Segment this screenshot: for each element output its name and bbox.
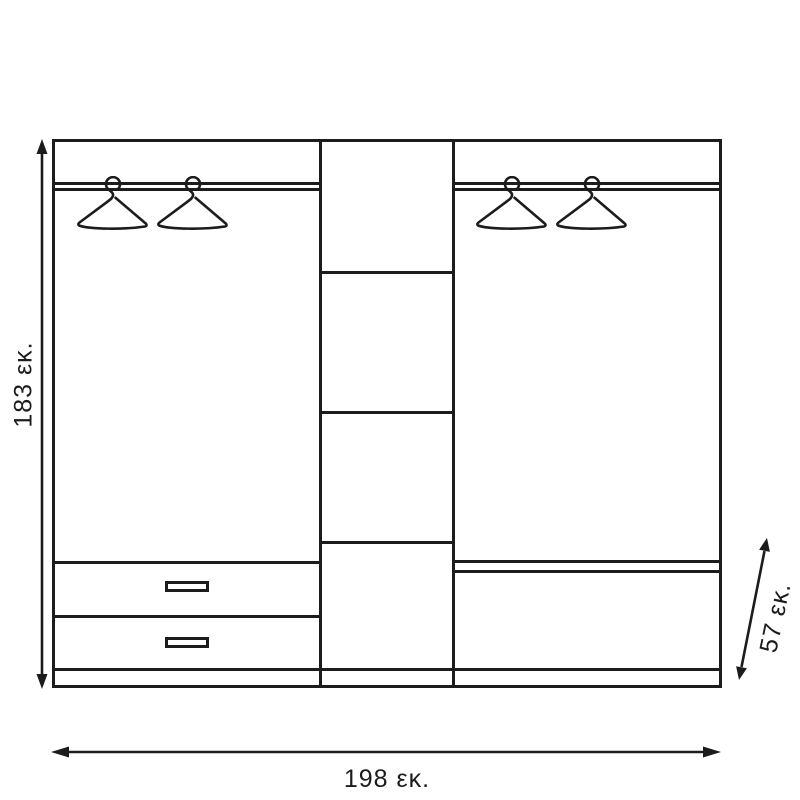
height-dimension-label: 183 εκ. xyxy=(10,325,39,445)
width-dimension-arrow xyxy=(50,744,722,760)
drawer-handle-icon xyxy=(165,581,209,592)
drawer-handle-icon xyxy=(165,637,209,648)
middle-shelf-1 xyxy=(322,271,452,274)
drawer-top-line xyxy=(55,561,319,564)
hanger-icon xyxy=(155,176,231,233)
hanger-icon xyxy=(75,176,151,233)
hanger-icon xyxy=(474,176,550,233)
middle-shelf-2 xyxy=(322,411,452,414)
vertical-divider-right xyxy=(452,139,455,688)
hanger-icon xyxy=(554,176,630,233)
width-dimension-label: 198 εκ. xyxy=(287,765,487,794)
drawer-divider-line xyxy=(55,615,319,618)
right-shelf xyxy=(455,560,719,573)
plinth-line xyxy=(55,668,719,671)
middle-shelf-3 xyxy=(322,541,452,544)
wardrobe-diagram: 183 εκ. 198 εκ. 57 εκ. xyxy=(0,0,800,800)
